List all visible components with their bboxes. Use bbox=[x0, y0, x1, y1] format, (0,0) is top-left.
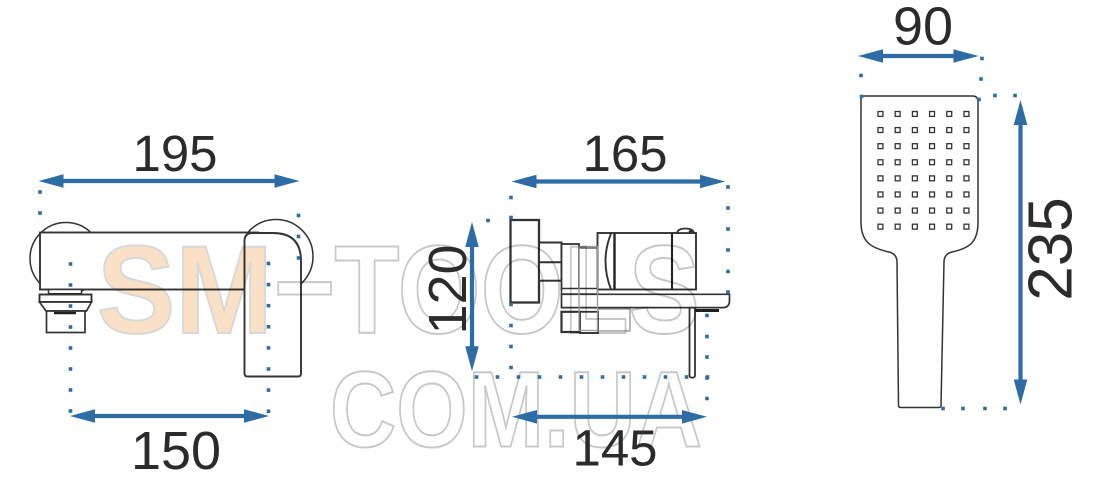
svg-text:145: 145 bbox=[572, 420, 657, 477]
svg-text:90: 90 bbox=[893, 0, 953, 57]
svg-text:195: 195 bbox=[132, 125, 217, 182]
svg-text:120: 120 bbox=[418, 244, 478, 334]
svg-text:235: 235 bbox=[1017, 197, 1086, 300]
svg-text:165: 165 bbox=[582, 125, 667, 182]
svg-text:–TOOLS: –TOOLS bbox=[275, 210, 700, 360]
svg-text:SM: SM bbox=[97, 221, 273, 360]
svg-text:150: 150 bbox=[131, 421, 221, 481]
